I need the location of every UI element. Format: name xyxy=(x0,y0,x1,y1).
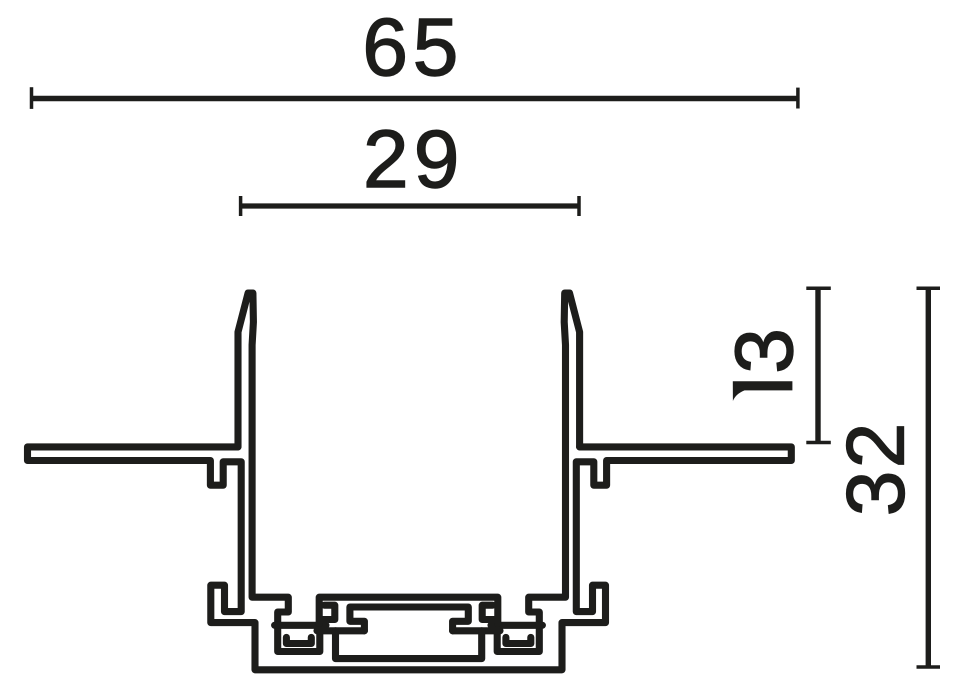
svg-text:9: 9 xyxy=(414,114,460,205)
svg-text:3: 3 xyxy=(831,471,922,517)
svg-text:6: 6 xyxy=(362,2,408,93)
svg-text:2: 2 xyxy=(363,114,409,205)
svg-text:3: 3 xyxy=(719,328,810,374)
svg-text:5: 5 xyxy=(413,2,459,93)
svg-text:2: 2 xyxy=(831,423,922,469)
